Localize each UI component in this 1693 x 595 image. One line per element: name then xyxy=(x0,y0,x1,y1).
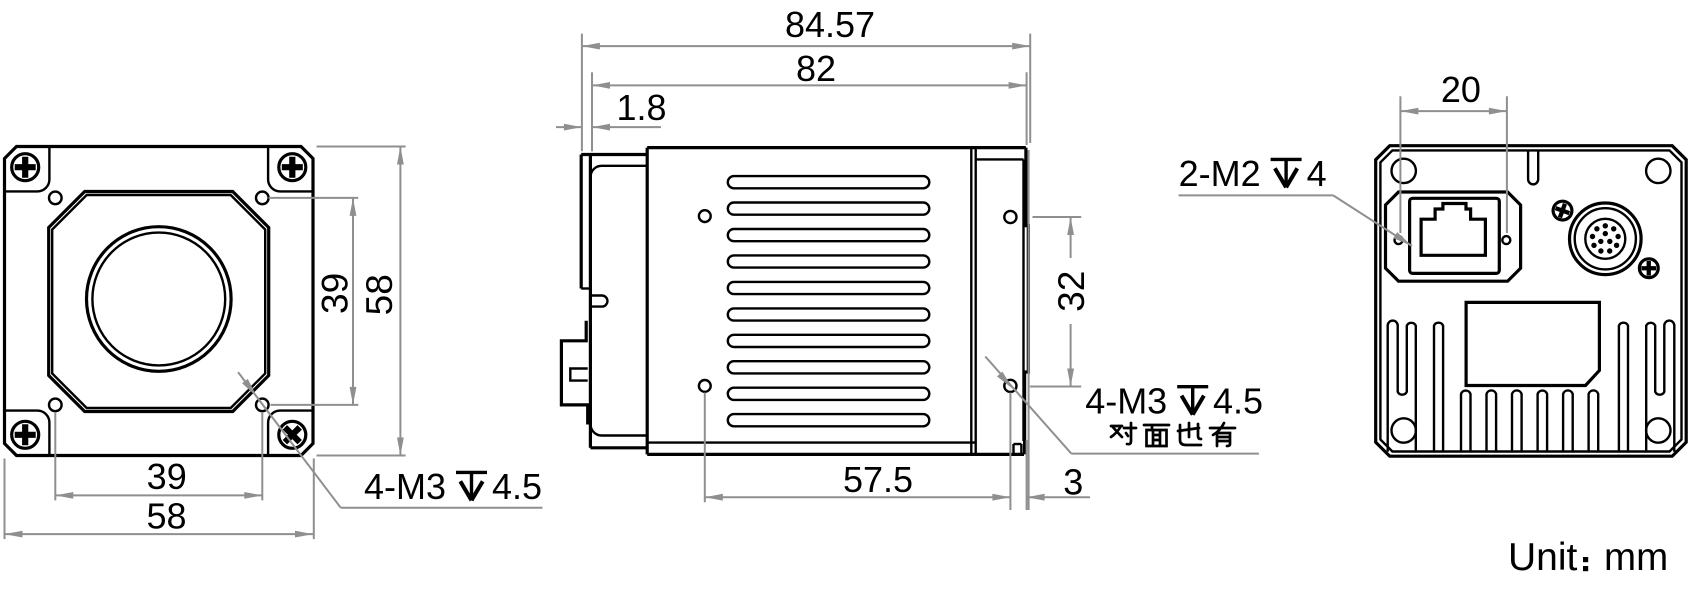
svg-text:84.57: 84.57 xyxy=(785,4,875,45)
svg-text:39: 39 xyxy=(315,273,356,314)
svg-text:mm: mm xyxy=(1604,536,1668,579)
svg-text:32: 32 xyxy=(1051,271,1092,312)
svg-text:58: 58 xyxy=(359,274,400,315)
svg-text:39: 39 xyxy=(147,456,187,497)
svg-text:4-M3: 4-M3 xyxy=(364,466,446,507)
svg-text:82: 82 xyxy=(796,48,836,89)
svg-text:Unit: Unit xyxy=(1508,536,1578,579)
svg-text:4.5: 4.5 xyxy=(1213,380,1263,421)
svg-text:2-M2: 2-M2 xyxy=(1179,153,1261,194)
svg-text:3: 3 xyxy=(1063,461,1083,502)
svg-text:4.5: 4.5 xyxy=(492,466,542,507)
svg-text:1.8: 1.8 xyxy=(616,87,666,128)
svg-text:4: 4 xyxy=(1307,153,1327,194)
svg-text:58: 58 xyxy=(146,495,186,536)
svg-text:4-M3: 4-M3 xyxy=(1085,380,1167,421)
svg-text:57.5: 57.5 xyxy=(843,459,913,500)
svg-text:20: 20 xyxy=(1441,69,1481,110)
